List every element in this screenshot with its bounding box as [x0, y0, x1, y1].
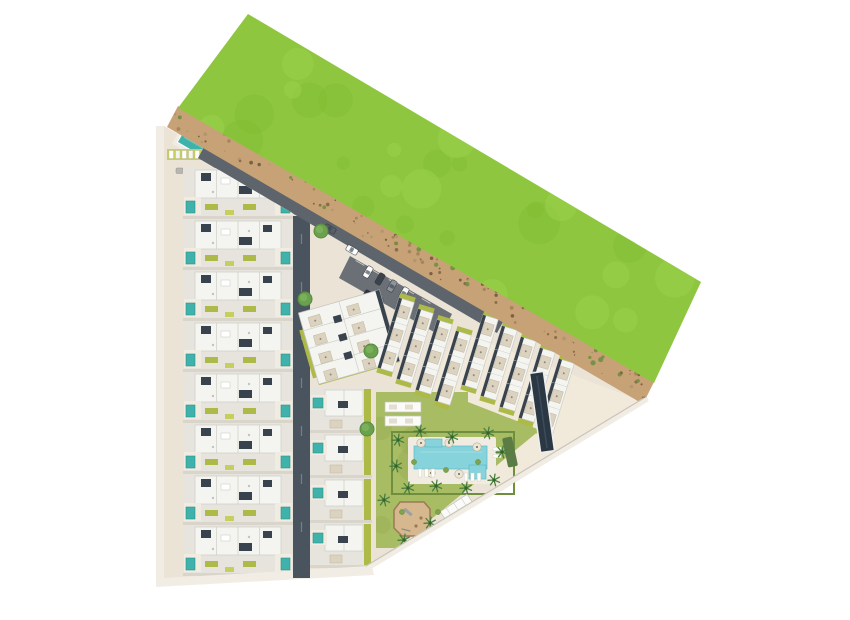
dirt-speckle [416, 252, 419, 255]
dirt-speckle [591, 352, 592, 353]
palm-crown [382, 498, 385, 501]
tree-highlight [362, 424, 370, 432]
tree-highlight [366, 346, 374, 354]
grass-blob [387, 143, 401, 157]
dirt-shrub [588, 356, 591, 359]
hedge-strip [205, 561, 218, 567]
road-center-dash [301, 426, 302, 436]
dirt-speckle [547, 333, 549, 335]
dirt-speckle [370, 235, 373, 238]
dirt-shrub [601, 355, 604, 358]
dirt-shrub [434, 263, 438, 267]
patio-furniture [176, 168, 183, 174]
townhouse-row [183, 219, 293, 270]
hedge-strip [205, 306, 218, 312]
hedge-strip-light [225, 414, 234, 419]
palm-crown [464, 486, 467, 489]
dirt-speckle [629, 370, 631, 372]
row-path [183, 369, 293, 372]
dirt-speckle [420, 258, 422, 260]
roof-dark-accent [338, 536, 348, 543]
dirt-speckle [543, 330, 545, 332]
amenity-lounger [189, 151, 194, 159]
terrace [330, 420, 342, 428]
roof-dark-accent [338, 401, 348, 408]
terrace [330, 555, 342, 563]
row-path [183, 471, 293, 474]
dirt-speckle [495, 301, 498, 304]
grass-blob [380, 175, 402, 197]
dirt-speckle [392, 236, 395, 239]
grass-blob [575, 295, 609, 329]
hedge-strip [243, 408, 256, 414]
dirt-speckle [395, 248, 399, 252]
umbrella-pole [458, 473, 460, 475]
site-plan-svg [0, 0, 850, 620]
bush-icon [475, 459, 480, 464]
roof-dark-accent [201, 224, 211, 232]
dirt-speckle [227, 139, 230, 142]
tree-highlight [300, 294, 308, 302]
private-pool [281, 354, 290, 366]
grass-blob [545, 189, 577, 221]
road-center-dash [301, 474, 302, 484]
private-pool [313, 398, 323, 408]
terrace [330, 465, 342, 473]
grass-blob [402, 169, 442, 209]
palm-crown [402, 538, 405, 541]
dirt-speckle [361, 235, 364, 238]
road-center-dash [301, 522, 302, 532]
hedge-strip-light [225, 516, 234, 521]
lounger-body [464, 473, 468, 481]
site-plan-render [0, 0, 850, 620]
roof-dark-accent [263, 225, 272, 232]
ac-unit [212, 191, 214, 193]
grass-blob [439, 230, 454, 245]
dirt-speckle [186, 130, 188, 132]
ac-unit [212, 344, 214, 346]
dirt-speckle [326, 203, 330, 207]
ac-unit [212, 548, 214, 550]
ac-unit [248, 536, 250, 538]
grass-blob [527, 201, 544, 218]
roof-dark-accent [201, 326, 211, 334]
private-pool [186, 405, 195, 417]
grass-blob [235, 95, 274, 134]
roof-dormer [221, 382, 230, 388]
roof-dormer [221, 433, 230, 439]
lounger-body [477, 473, 481, 481]
roof-dark-accent [263, 429, 272, 436]
hedge-strip [243, 306, 256, 312]
dirt-speckle [601, 373, 602, 374]
sidewalk-left [156, 126, 165, 582]
dirt-speckle [257, 163, 260, 166]
dirt-speckle [514, 321, 517, 324]
palm-crown [418, 429, 421, 432]
bush-icon [399, 509, 404, 514]
dirt-speckle [494, 294, 497, 297]
dirt-speckle [224, 150, 226, 152]
dirt-speckle [483, 288, 486, 291]
hedge-strip [205, 408, 218, 414]
dirt-speckle [355, 217, 358, 220]
grass-blob [613, 308, 638, 333]
road-center-dash [301, 234, 302, 244]
sun-lounger [471, 473, 475, 481]
lawn-blob [515, 483, 532, 500]
dirt-speckle [269, 164, 271, 166]
sun-lounger [418, 469, 422, 477]
ac-unit [212, 293, 214, 295]
grass-blob [613, 229, 646, 262]
row-path [310, 520, 372, 523]
hedge-strip [243, 357, 256, 363]
dirt-speckle [429, 272, 432, 275]
ac-unit [248, 281, 250, 283]
grass-blob [655, 258, 695, 298]
dirt-speckle [292, 179, 294, 181]
dirt-speckle [367, 232, 369, 234]
private-pool [281, 507, 290, 519]
roof-dark-accent [201, 479, 211, 487]
lounger-body [418, 469, 422, 477]
dirt-speckle [629, 373, 631, 375]
spring-toy-icon [419, 516, 422, 519]
private-pool [313, 488, 323, 498]
dirt-speckle [319, 204, 322, 207]
dirt-speckle [313, 188, 316, 191]
palm-crown [450, 435, 453, 438]
bush-icon [443, 467, 448, 472]
dirt-speckle [630, 385, 633, 388]
dirt-speckle [385, 239, 387, 241]
palm-crown [396, 438, 399, 441]
hedge-strip [243, 255, 256, 261]
row-path [183, 318, 293, 321]
row-path [183, 420, 293, 423]
ac-unit [212, 497, 214, 499]
row-path [183, 522, 293, 525]
sun-lounger [431, 469, 435, 477]
dirt-speckle [430, 257, 434, 261]
terrace [330, 510, 342, 518]
dirt-speckle [467, 279, 469, 281]
dirt-speckle [439, 267, 441, 269]
private-pool [186, 558, 195, 570]
dirt-speckle [572, 341, 574, 343]
hedge-strip [205, 459, 218, 465]
roof-dark-accent [239, 390, 252, 398]
private-pool [281, 558, 290, 570]
roof-dark-accent [239, 543, 252, 551]
dirt-speckle [249, 161, 253, 165]
ac-unit [212, 395, 214, 397]
grass-blob [396, 215, 414, 233]
dirt-speckle [203, 132, 207, 136]
roof-dark-accent [263, 531, 272, 538]
lounger-body [431, 469, 435, 477]
roof-dark-accent [239, 288, 252, 296]
townhouse-row [183, 321, 293, 372]
dirt-speckle [438, 271, 441, 274]
roof-dormer [221, 535, 230, 541]
dirt-speckle [408, 250, 412, 254]
private-pool [186, 456, 195, 468]
dirt-shrub [636, 379, 640, 383]
bush-icon [435, 509, 440, 514]
dirt-shrub [465, 282, 470, 287]
dirt-speckle [354, 222, 356, 224]
hedge-strip [205, 357, 218, 363]
dirt-speckle [510, 306, 514, 310]
amenity-lounger [182, 151, 187, 159]
pergola-lounger [389, 419, 397, 424]
hedge-strip [205, 255, 218, 261]
dirt-speckle [408, 244, 411, 247]
dirt-speckle [201, 141, 203, 143]
ac-unit [212, 446, 214, 448]
dirt-shrub [178, 115, 182, 119]
townhouse-row [183, 525, 293, 576]
roof-dark-accent [263, 327, 272, 334]
roof-dark-accent [239, 492, 252, 500]
row-path [183, 267, 293, 270]
hedge-strip-light [225, 363, 234, 368]
row-path [183, 216, 293, 219]
townhouse-row [183, 270, 293, 321]
palm-crown [492, 478, 495, 481]
dirt-speckle [436, 258, 438, 260]
tree-highlight [316, 226, 324, 234]
grass-blob [438, 120, 476, 158]
dirt-speckle [313, 203, 315, 205]
hedge-strip-light [225, 465, 234, 470]
roof-dark-accent [239, 339, 252, 347]
roof-dark-accent [201, 530, 211, 538]
palm-crown [394, 464, 397, 467]
pergola-lounger [405, 405, 413, 410]
dirt-speckle [331, 209, 334, 212]
umbrella-pole [476, 446, 478, 448]
private-pool [186, 507, 195, 519]
hedge-strip [205, 510, 218, 516]
dirt-shrub [289, 176, 292, 179]
private-pool [281, 405, 290, 417]
sun-lounger [464, 473, 468, 481]
dirt-speckle [562, 337, 566, 341]
hedge-strip [243, 204, 256, 210]
roof-dormer [221, 331, 230, 337]
ac-unit [248, 383, 250, 385]
roof-dark-accent [201, 377, 211, 385]
roof-dormer [221, 484, 230, 490]
sun-lounger [477, 473, 481, 481]
amenity-lounger [169, 151, 174, 159]
dirt-speckle [641, 383, 643, 385]
roof-dormer [221, 280, 230, 286]
private-pool [186, 354, 195, 366]
dirt-speckle [421, 260, 425, 264]
dirt-speckle [334, 200, 336, 202]
grass-blob [603, 261, 630, 288]
townhouse-row [183, 423, 293, 474]
roof-dark-accent [239, 441, 252, 449]
amenity-lounger [176, 151, 181, 159]
private-pool [281, 252, 290, 264]
spring-toy-icon [414, 524, 417, 527]
roof-dark-accent [263, 378, 272, 385]
grass-blob [284, 81, 302, 99]
palm-crown [428, 521, 431, 524]
grass-blob [337, 157, 350, 170]
roof-dark-accent [338, 491, 348, 498]
dirt-speckle [239, 160, 242, 163]
ac-unit [212, 242, 214, 244]
dirt-speckle [353, 220, 355, 222]
townhouse-row [183, 474, 293, 525]
grass-blob [452, 156, 468, 172]
hedge-strip [364, 479, 371, 520]
hedge-strip [243, 510, 256, 516]
palm-crown [486, 431, 489, 434]
dirt-speckle [174, 113, 177, 116]
dirt-shrub [590, 360, 595, 365]
lounger-body [471, 473, 475, 481]
palm-crown [406, 486, 409, 489]
roof-dark-accent [263, 480, 272, 487]
lounger-body [425, 469, 429, 477]
roof-dormer [221, 178, 230, 184]
umbrella-pole [420, 442, 422, 444]
dirt-speckle [413, 259, 417, 263]
hedge-strip [364, 524, 371, 565]
townhouse-column [183, 168, 293, 576]
pergola-lounger [405, 419, 413, 424]
private-pool [186, 252, 195, 264]
ac-unit [248, 434, 250, 436]
private-pool [281, 456, 290, 468]
inner-townhouse-row [310, 433, 372, 478]
ac-unit [248, 230, 250, 232]
dirt-shrub [394, 242, 398, 246]
roof-dormer [221, 229, 230, 235]
roof-dark-accent [201, 428, 211, 436]
palm-crown [500, 450, 503, 453]
palm-crown [434, 484, 437, 487]
private-pool [313, 443, 323, 453]
hedge-strip-light [225, 261, 234, 266]
private-pool [281, 303, 290, 315]
hedge-strip [243, 561, 256, 567]
hedge-strip-light [225, 567, 234, 572]
dirt-speckle [487, 288, 488, 289]
dirt-speckle [440, 279, 442, 281]
dirt-speckle [361, 215, 363, 217]
road-center-dash [301, 378, 302, 388]
private-pool [186, 303, 195, 315]
dirt-speckle [511, 314, 515, 318]
sun-lounger [425, 469, 429, 477]
dirt-speckle [198, 136, 200, 138]
hedge-strip [364, 434, 371, 475]
dirt-speckle [554, 336, 557, 339]
hedge-strip [205, 204, 218, 210]
roof-dark-accent [201, 173, 211, 181]
hedge-strip [243, 459, 256, 465]
inner-townhouse-row [310, 523, 372, 568]
pergola-lounger [389, 405, 397, 410]
roof-dark-accent [201, 275, 211, 283]
private-pool [313, 533, 323, 543]
roof-dark-accent [263, 276, 272, 283]
dirt-shrub [618, 372, 622, 376]
inner-townhouse-row [310, 478, 372, 523]
dirt-speckle [395, 235, 398, 238]
dirt-speckle [177, 127, 181, 131]
dirt-speckle [380, 230, 383, 233]
communal-pool [425, 439, 442, 447]
ac-unit [248, 485, 250, 487]
ac-unit [248, 332, 250, 334]
dirt-speckle [387, 245, 389, 247]
bush-icon [411, 459, 416, 464]
roof-dark-accent [239, 237, 252, 245]
dirt-speckle [573, 351, 575, 353]
townhouse-row [183, 372, 293, 423]
dirt-speckle [459, 279, 462, 282]
road-center-dash [301, 282, 302, 292]
dirt-speckle [554, 330, 557, 333]
grass-blob [282, 48, 314, 80]
private-pool [186, 201, 195, 213]
hedge-strip-light [225, 312, 234, 317]
roof-dark-accent [338, 446, 348, 453]
hedge-strip-light [225, 210, 234, 215]
dirt-speckle [574, 354, 576, 356]
dirt-shrub [322, 205, 326, 209]
row-path [310, 475, 372, 478]
dirt-speckle [204, 140, 206, 142]
